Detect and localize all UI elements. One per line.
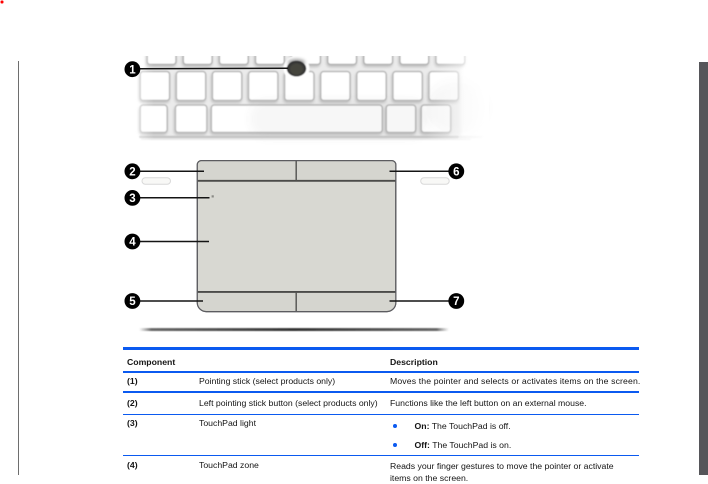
svg-text:2: 2 <box>129 166 135 178</box>
svg-text:6: 6 <box>453 166 459 178</box>
svg-text:7: 7 <box>453 296 459 308</box>
svg-text:4: 4 <box>129 237 136 249</box>
svg-text:1: 1 <box>129 64 136 76</box>
svg-text:5: 5 <box>129 296 136 308</box>
svg-text:3: 3 <box>129 193 135 205</box>
